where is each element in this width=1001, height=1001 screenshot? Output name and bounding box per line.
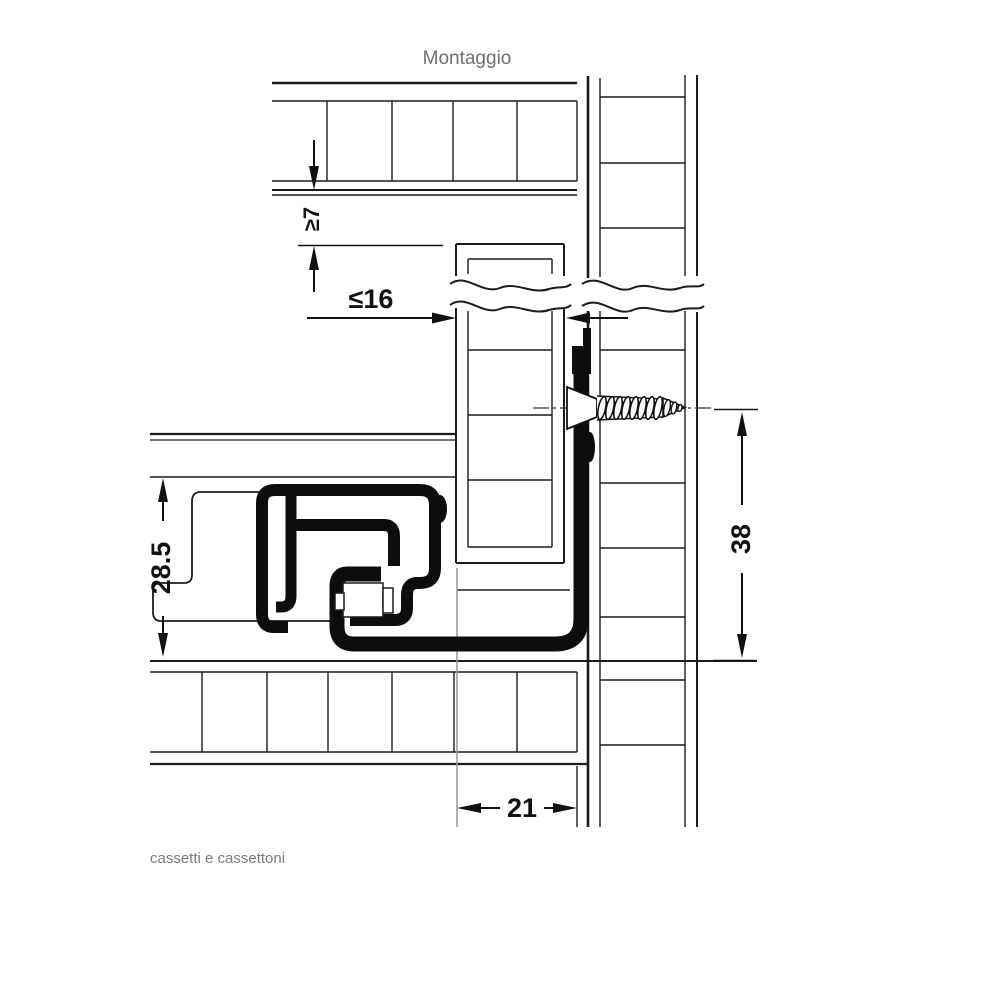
dim-runner-height-label: 28.5 [146,542,176,595]
dimension-runner-height: 28.5 [146,478,176,657]
runner-inner-leg [276,492,291,607]
panel-break-wave [450,280,571,290]
panel-break-wave [582,281,704,290]
screw-threads [596,396,664,420]
adjustment-block [335,583,393,617]
dim-front-thickness-label: ≤16 [349,284,394,314]
caption: cassetti e cassettoni [150,850,285,867]
arrowhead-down [309,166,319,190]
page-title: Montaggio [423,48,512,69]
technical-drawing: ≥7 ≤16 28.5 38 21 Montaggio cassetti e c… [0,0,1001,1001]
panel-break-wave [582,303,704,312]
arrowhead-down [737,634,747,658]
montage-diagram-page: ≥7 ≤16 28.5 38 21 Montaggio cassetti e c… [0,0,1001,1001]
drawer-bottom-panel [150,434,456,477]
arrowhead-up [737,412,747,436]
dim-bottom-inset-label: 21 [507,793,537,823]
dimension-top-clearance: ≥7 [298,140,443,292]
slide-profile [262,328,595,644]
runner-middle-bar [294,525,394,566]
arrowhead-right [432,313,456,324]
mounting-screw [567,387,685,429]
drawer-front-panel [450,244,571,563]
arrowhead-left [566,313,590,324]
arrowhead-down [158,633,168,657]
cabinet-top-panel [272,83,577,195]
arrowhead-right [553,803,577,813]
panel-break-wave [450,301,571,311]
arrowhead-up [158,478,168,502]
dim-top-clearance-label: ≥7 [299,207,324,231]
arrowhead-up [309,246,319,270]
cabinet-side-panel [582,75,704,827]
arrowhead-left [457,803,481,813]
bottom-shelf-panel [150,661,757,764]
dim-screw-height-label: 38 [726,524,756,554]
dimension-bottom-inset: 21 [457,793,577,823]
screw-head [567,387,597,429]
dimension-screw-height: 38 [713,410,758,661]
